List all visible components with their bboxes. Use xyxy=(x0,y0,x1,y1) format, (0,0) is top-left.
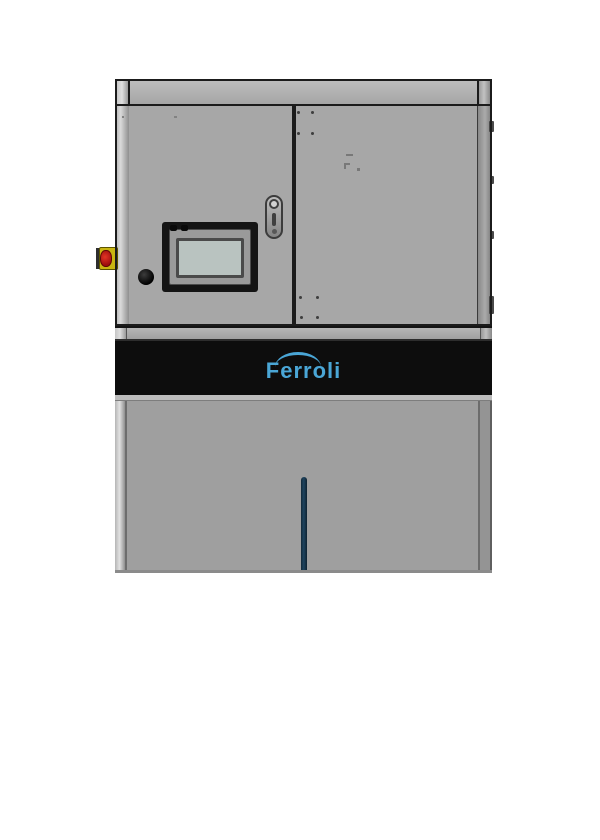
top-rail-corner-left xyxy=(117,81,130,104)
level-indicator-sight-glass xyxy=(301,477,307,573)
cabinet-top-rail xyxy=(115,79,492,106)
product-image-canvas: Ferroli xyxy=(0,0,600,840)
brand-band: Ferroli xyxy=(115,341,492,395)
cabinet-outline xyxy=(115,104,492,326)
top-rail-corner-right xyxy=(477,81,490,104)
ferroli-logo: Ferroli xyxy=(266,354,341,382)
mid-rail-corner-right xyxy=(480,328,492,339)
mid-rail-corner-left xyxy=(115,328,127,339)
emergency-stop-button xyxy=(100,250,112,267)
cabinet-bottom-edge xyxy=(115,570,492,573)
ferroli-logo-arc xyxy=(275,352,321,367)
lower-right-post xyxy=(480,401,492,573)
cabinet-mid-rail xyxy=(115,326,492,341)
lower-left-post xyxy=(115,401,127,573)
